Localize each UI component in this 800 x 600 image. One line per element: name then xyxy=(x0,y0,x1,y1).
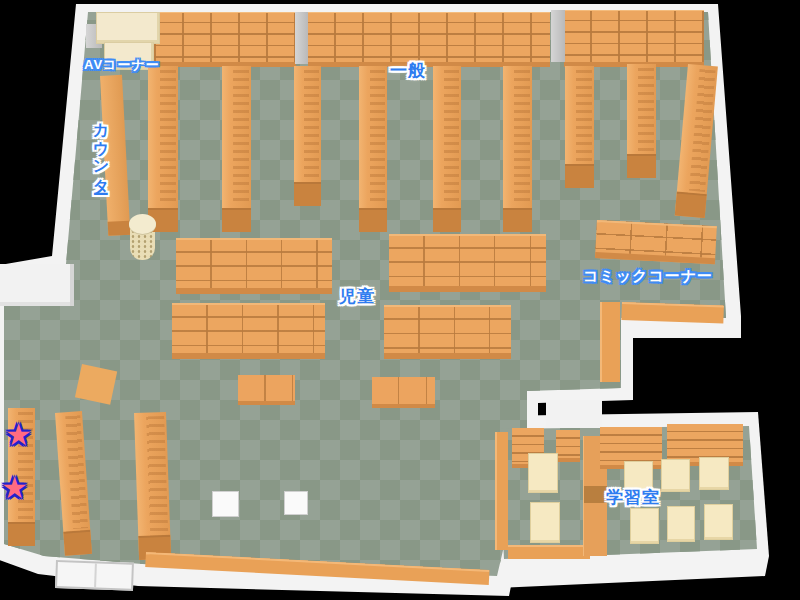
markers-layer: ★★ xyxy=(0,0,800,600)
star-marker[interactable]: ★ xyxy=(5,420,32,450)
library-floor-map: AVコーナー カウンター 一般 児童 コミックコーナー 学習室 ★★ xyxy=(0,0,800,600)
star-marker[interactable]: ★ xyxy=(1,473,28,503)
